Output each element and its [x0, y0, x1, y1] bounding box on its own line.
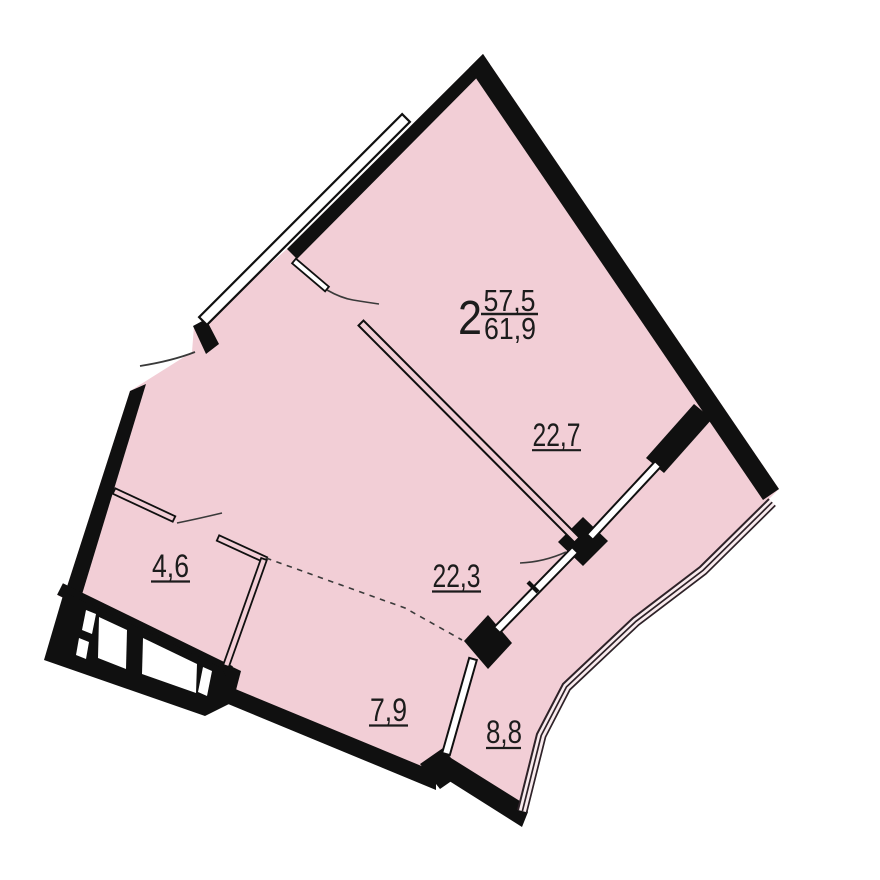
svg-text:22,7: 22,7 — [533, 417, 581, 453]
svg-text:7,9: 7,9 — [370, 692, 407, 728]
svg-text:22,3: 22,3 — [433, 558, 481, 594]
svg-text:2: 2 — [458, 292, 482, 345]
svg-text:61,9: 61,9 — [484, 311, 536, 346]
svg-text:8,8: 8,8 — [486, 714, 522, 750]
svg-text:4,6: 4,6 — [152, 548, 189, 584]
